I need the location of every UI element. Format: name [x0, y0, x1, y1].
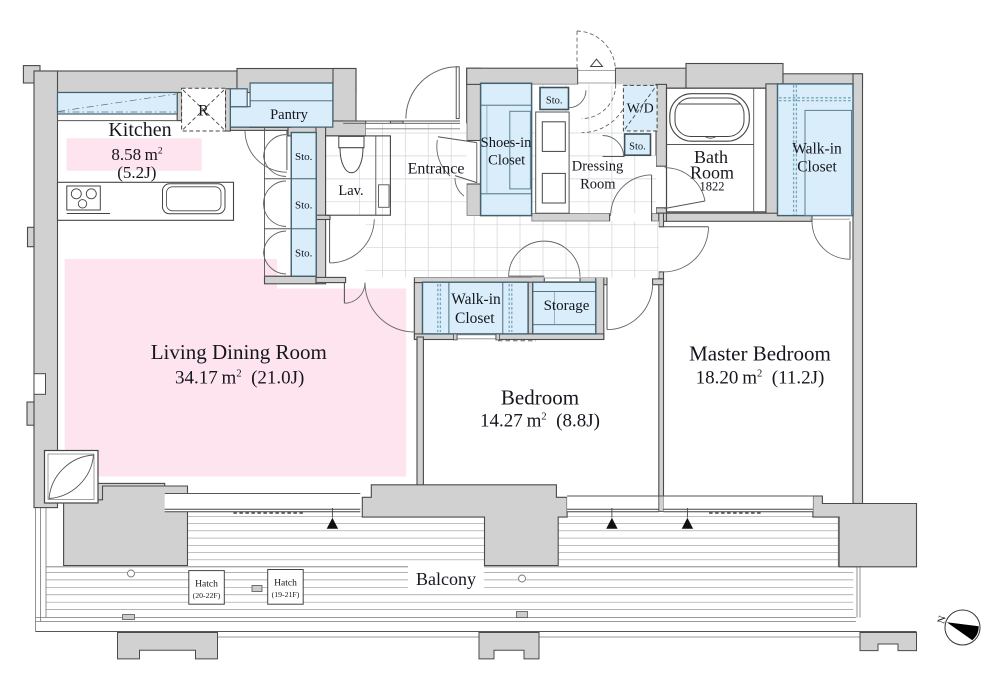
svg-text:Walk-in: Walk-in	[792, 141, 842, 158]
svg-text:R: R	[198, 103, 209, 120]
svg-text:Room: Room	[580, 177, 616, 193]
svg-text:Bedroom: Bedroom	[501, 386, 579, 410]
svg-text:Hatch: Hatch	[195, 580, 218, 590]
svg-text:8.58 m2: 8.58 m2	[111, 145, 162, 164]
svg-text:(5.2J): (5.2J)	[117, 163, 156, 182]
svg-text:Kitchen: Kitchen	[108, 119, 171, 141]
svg-text:Pantry: Pantry	[270, 107, 309, 123]
svg-text:(20-22F): (20-22F)	[193, 591, 221, 600]
svg-text:Sto.: Sto.	[295, 248, 313, 260]
svg-text:Balcony: Balcony	[416, 569, 476, 589]
svg-text:Closet: Closet	[488, 153, 525, 169]
svg-text:Sto.: Sto.	[295, 200, 313, 212]
svg-text:W/D: W/D	[627, 102, 654, 117]
svg-text:Closet: Closet	[797, 159, 837, 176]
svg-text:(19-21F): (19-21F)	[272, 590, 300, 599]
svg-text:Hatch: Hatch	[274, 579, 297, 589]
svg-text:Shoes-in: Shoes-in	[481, 135, 533, 151]
svg-text:Master Bedroom: Master Bedroom	[689, 342, 831, 366]
svg-text:Closet: Closet	[455, 310, 495, 327]
svg-text:Storage: Storage	[544, 298, 590, 314]
svg-text:Entrance: Entrance	[408, 161, 465, 178]
svg-text:14.27 m2 (8.8J): 14.27 m2 (8.8J)	[480, 411, 600, 432]
svg-text:Sto.: Sto.	[295, 151, 313, 163]
svg-text:Dressing: Dressing	[572, 159, 624, 175]
svg-text:Lav.: Lav.	[338, 183, 363, 199]
svg-text:Sto.: Sto.	[629, 142, 646, 153]
svg-text:Walk-in: Walk-in	[451, 291, 501, 308]
svg-text:1822: 1822	[700, 180, 725, 194]
svg-text:Sto.: Sto.	[546, 96, 563, 107]
svg-text:Living Dining Room: Living Dining Room	[151, 340, 327, 364]
